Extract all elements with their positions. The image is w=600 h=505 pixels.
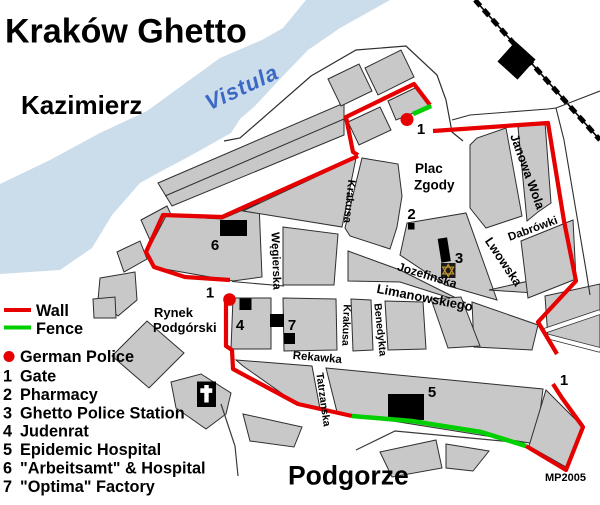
svg-text:1: 1 xyxy=(560,372,568,389)
svg-text:Kraków Ghetto: Kraków Ghetto xyxy=(5,13,247,51)
svg-text:3: 3 xyxy=(3,404,12,422)
svg-text:1: 1 xyxy=(206,285,214,302)
svg-text:Judenrat: Judenrat xyxy=(20,423,89,441)
svg-text:"Arbeitsamt" & Hospital: "Arbeitsamt" & Hospital xyxy=(20,460,206,478)
svg-text:2: 2 xyxy=(3,386,12,404)
svg-text:Podgorze: Podgorze xyxy=(288,461,409,491)
svg-text:Zgody: Zgody xyxy=(414,178,455,193)
svg-text:Węgierska: Węgierska xyxy=(268,232,282,291)
svg-text:Krakusa: Krakusa xyxy=(339,304,352,346)
svg-text:7: 7 xyxy=(288,317,296,334)
svg-text:6: 6 xyxy=(3,460,12,478)
svg-text:MP2005: MP2005 xyxy=(545,472,586,484)
svg-text:Plac: Plac xyxy=(415,161,443,176)
svg-text:Podgórski: Podgórski xyxy=(153,320,217,335)
svg-text:1: 1 xyxy=(3,368,12,386)
svg-text:German Police: German Police xyxy=(20,348,134,366)
svg-text:Rynek: Rynek xyxy=(154,305,194,320)
svg-text:2: 2 xyxy=(407,206,415,223)
svg-text:3: 3 xyxy=(455,250,463,267)
svg-text:Ghetto Police Station: Ghetto Police Station xyxy=(20,404,185,422)
svg-text:6: 6 xyxy=(211,237,219,254)
svg-text:1: 1 xyxy=(417,121,425,138)
svg-text:Kazimierz: Kazimierz xyxy=(21,90,142,120)
svg-text:7: 7 xyxy=(3,478,12,496)
svg-text:Epidemic Hospital: Epidemic Hospital xyxy=(20,441,161,459)
svg-text:"Optima" Factory: "Optima" Factory xyxy=(20,478,155,496)
svg-text:Pharmacy: Pharmacy xyxy=(20,386,98,404)
svg-text:Gate: Gate xyxy=(20,368,56,386)
svg-text:5: 5 xyxy=(3,441,12,459)
svg-text:Wall: Wall xyxy=(36,302,69,320)
svg-text:4: 4 xyxy=(236,317,245,334)
svg-text:4: 4 xyxy=(3,423,12,441)
svg-text:5: 5 xyxy=(428,384,436,401)
svg-text:Fence: Fence xyxy=(36,320,83,338)
